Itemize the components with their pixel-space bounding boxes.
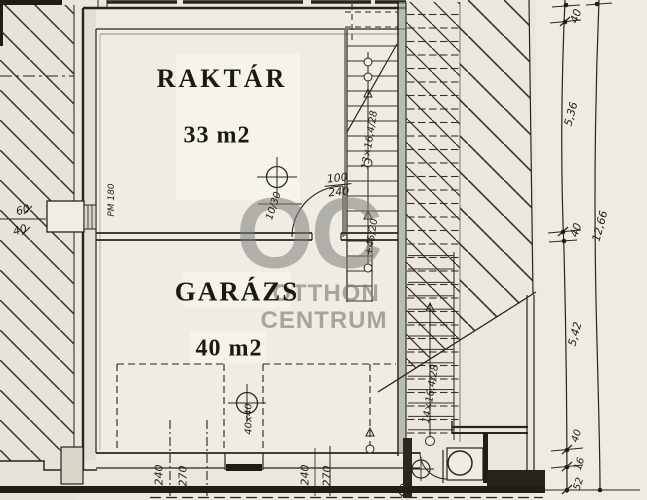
dim-bottom-right-240: 240	[299, 465, 312, 486]
room-area-garazs: 40 m2	[196, 336, 263, 363]
dim-interior-door: 100 240	[323, 170, 353, 200]
room-area-raktar: 33 m2	[184, 123, 251, 150]
room-name-garazs: GARÁZS	[175, 277, 300, 308]
dim-parapet: PM 180	[107, 183, 117, 216]
floorplan-scan: OC OTTHON CENTRUM RAKTÁR 33 m2 GARÁZS 40…	[0, 0, 647, 500]
dim-column-marker: 40x40	[244, 403, 255, 434]
dim-bottom-left-240: 240	[153, 465, 166, 486]
watermark-logo: OC	[236, 177, 380, 292]
dimension-lines	[538, 0, 640, 494]
dim-bottom-left-270: 270	[177, 466, 190, 487]
bottom-edge	[0, 486, 545, 498]
room-name-raktar: RAKTÁR	[157, 64, 288, 94]
dim-bottom-right-270: 270	[321, 466, 334, 487]
watermark-line2: CENTRUM	[261, 307, 388, 335]
